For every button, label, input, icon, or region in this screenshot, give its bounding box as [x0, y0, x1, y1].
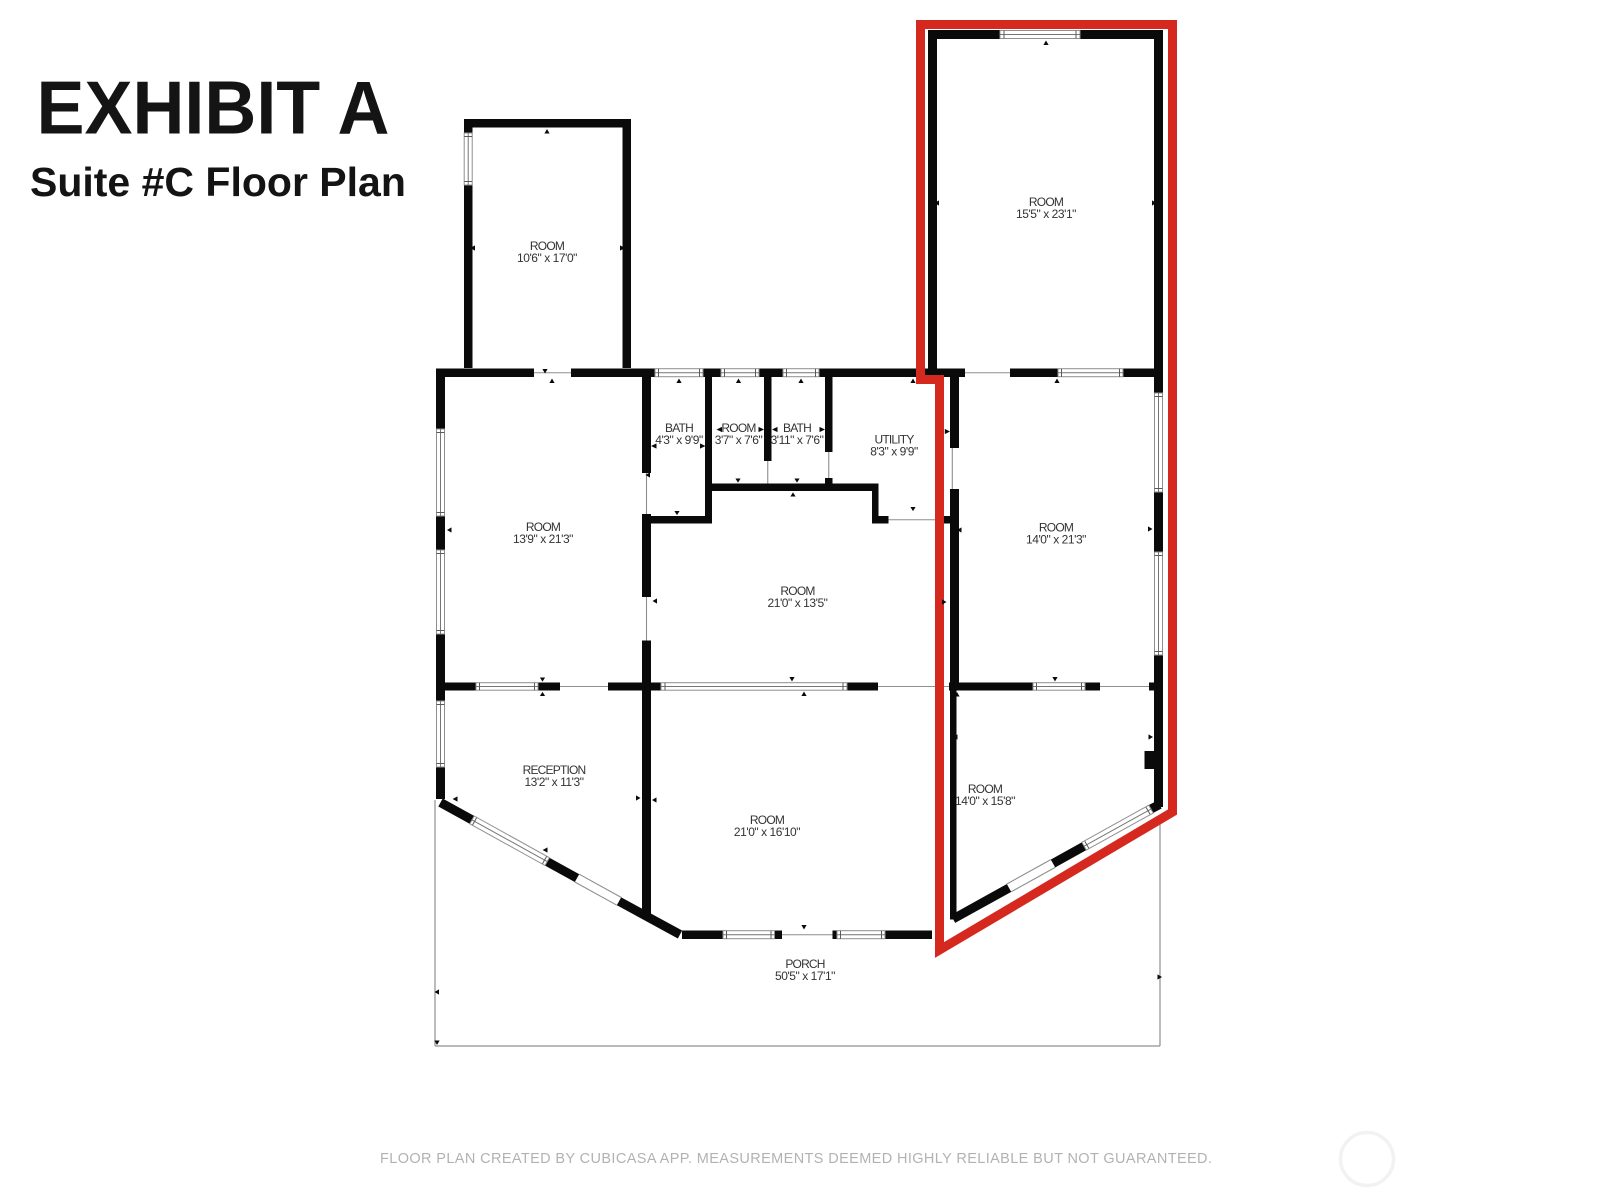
svg-text:4'3" x 9'9": 4'3" x 9'9" [655, 433, 703, 447]
svg-text:10'6" x 17'0": 10'6" x 17'0" [517, 251, 577, 265]
svg-text:15'5" x 23'1": 15'5" x 23'1" [1016, 207, 1076, 221]
svg-text:21'0" x 16'10": 21'0" x 16'10" [734, 825, 800, 839]
svg-text:13'9" x 21'3": 13'9" x 21'3" [513, 532, 573, 546]
svg-text:14'0" x 15'8": 14'0" x 15'8" [955, 794, 1015, 808]
svg-text:3'11" x 7'6": 3'11" x 7'6" [771, 433, 824, 447]
svg-text:Suite #C Floor Plan: Suite #C Floor Plan [30, 159, 406, 205]
svg-text:50'5" x 17'1": 50'5" x 17'1" [775, 969, 835, 983]
svg-text:EXHIBIT A: EXHIBIT A [37, 66, 390, 150]
svg-text:3'7" x 7'6": 3'7" x 7'6" [715, 433, 763, 447]
svg-text:21'0" x 13'5": 21'0" x 13'5" [768, 596, 828, 610]
svg-text:8'3" x 9'9": 8'3" x 9'9" [870, 445, 918, 459]
svg-text:FLOOR PLAN CREATED BY CUBICASA: FLOOR PLAN CREATED BY CUBICASA APP. MEAS… [380, 1151, 1213, 1167]
svg-text:13'2" x 11'3": 13'2" x 11'3" [524, 775, 583, 789]
svg-text:14'0" x 21'3": 14'0" x 21'3" [1026, 533, 1086, 547]
